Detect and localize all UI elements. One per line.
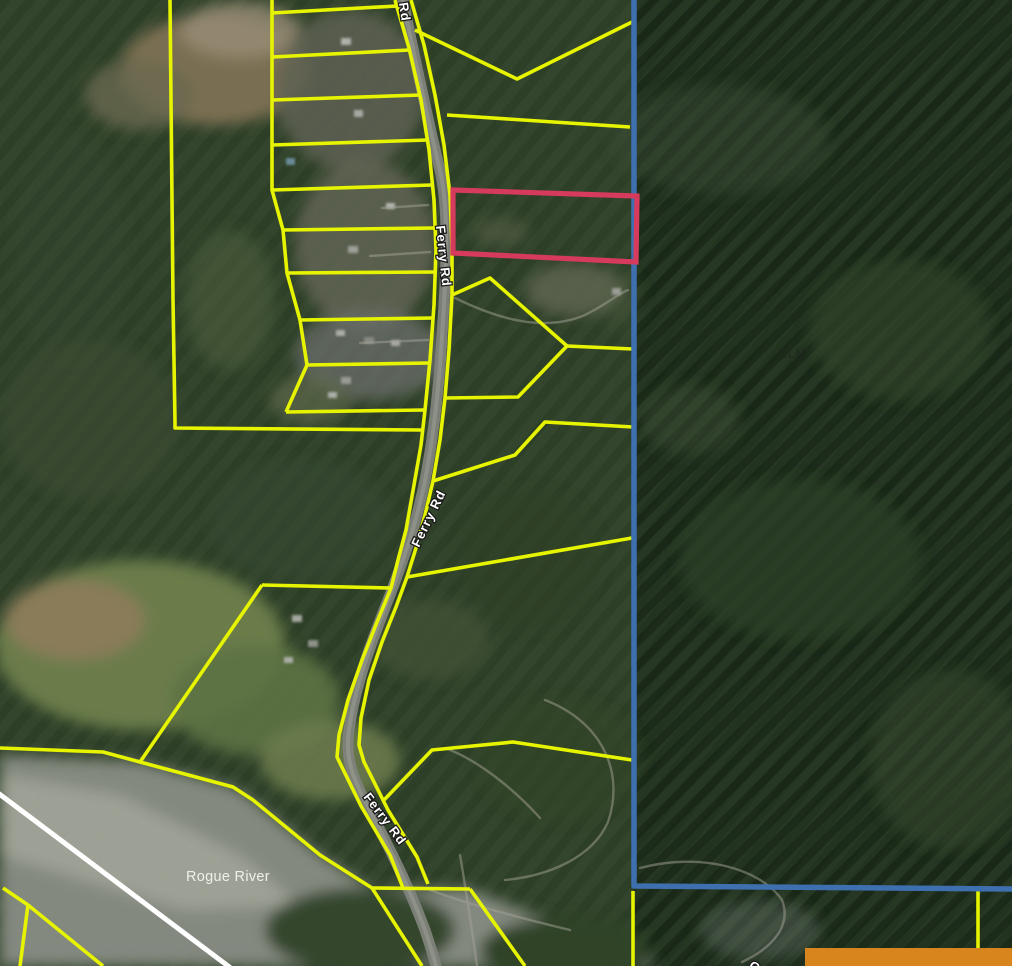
blm-area-label: BLM bbox=[779, 347, 806, 361]
road-label-ferry-rd-top: Rd bbox=[396, 1, 414, 22]
parcel-line bbox=[286, 410, 424, 412]
parcel-line bbox=[287, 272, 435, 273]
parcel-line bbox=[307, 363, 429, 365]
parcel-line bbox=[372, 888, 470, 889]
photo-grain-overlay bbox=[0, 0, 1012, 966]
parcel-line bbox=[283, 228, 435, 230]
rogue-river-label: Rogue River bbox=[186, 869, 270, 885]
aerial-map-canvas[interactable]: Rd Ferry Rd Ferry Rd Ferry Rd G BLM Rogu… bbox=[0, 0, 1012, 966]
overlay-box bbox=[805, 948, 1012, 966]
parcel-line bbox=[300, 318, 432, 320]
map-viewport[interactable]: Rd Ferry Rd Ferry Rd Ferry Rd G BLM Rogu… bbox=[0, 0, 1012, 966]
